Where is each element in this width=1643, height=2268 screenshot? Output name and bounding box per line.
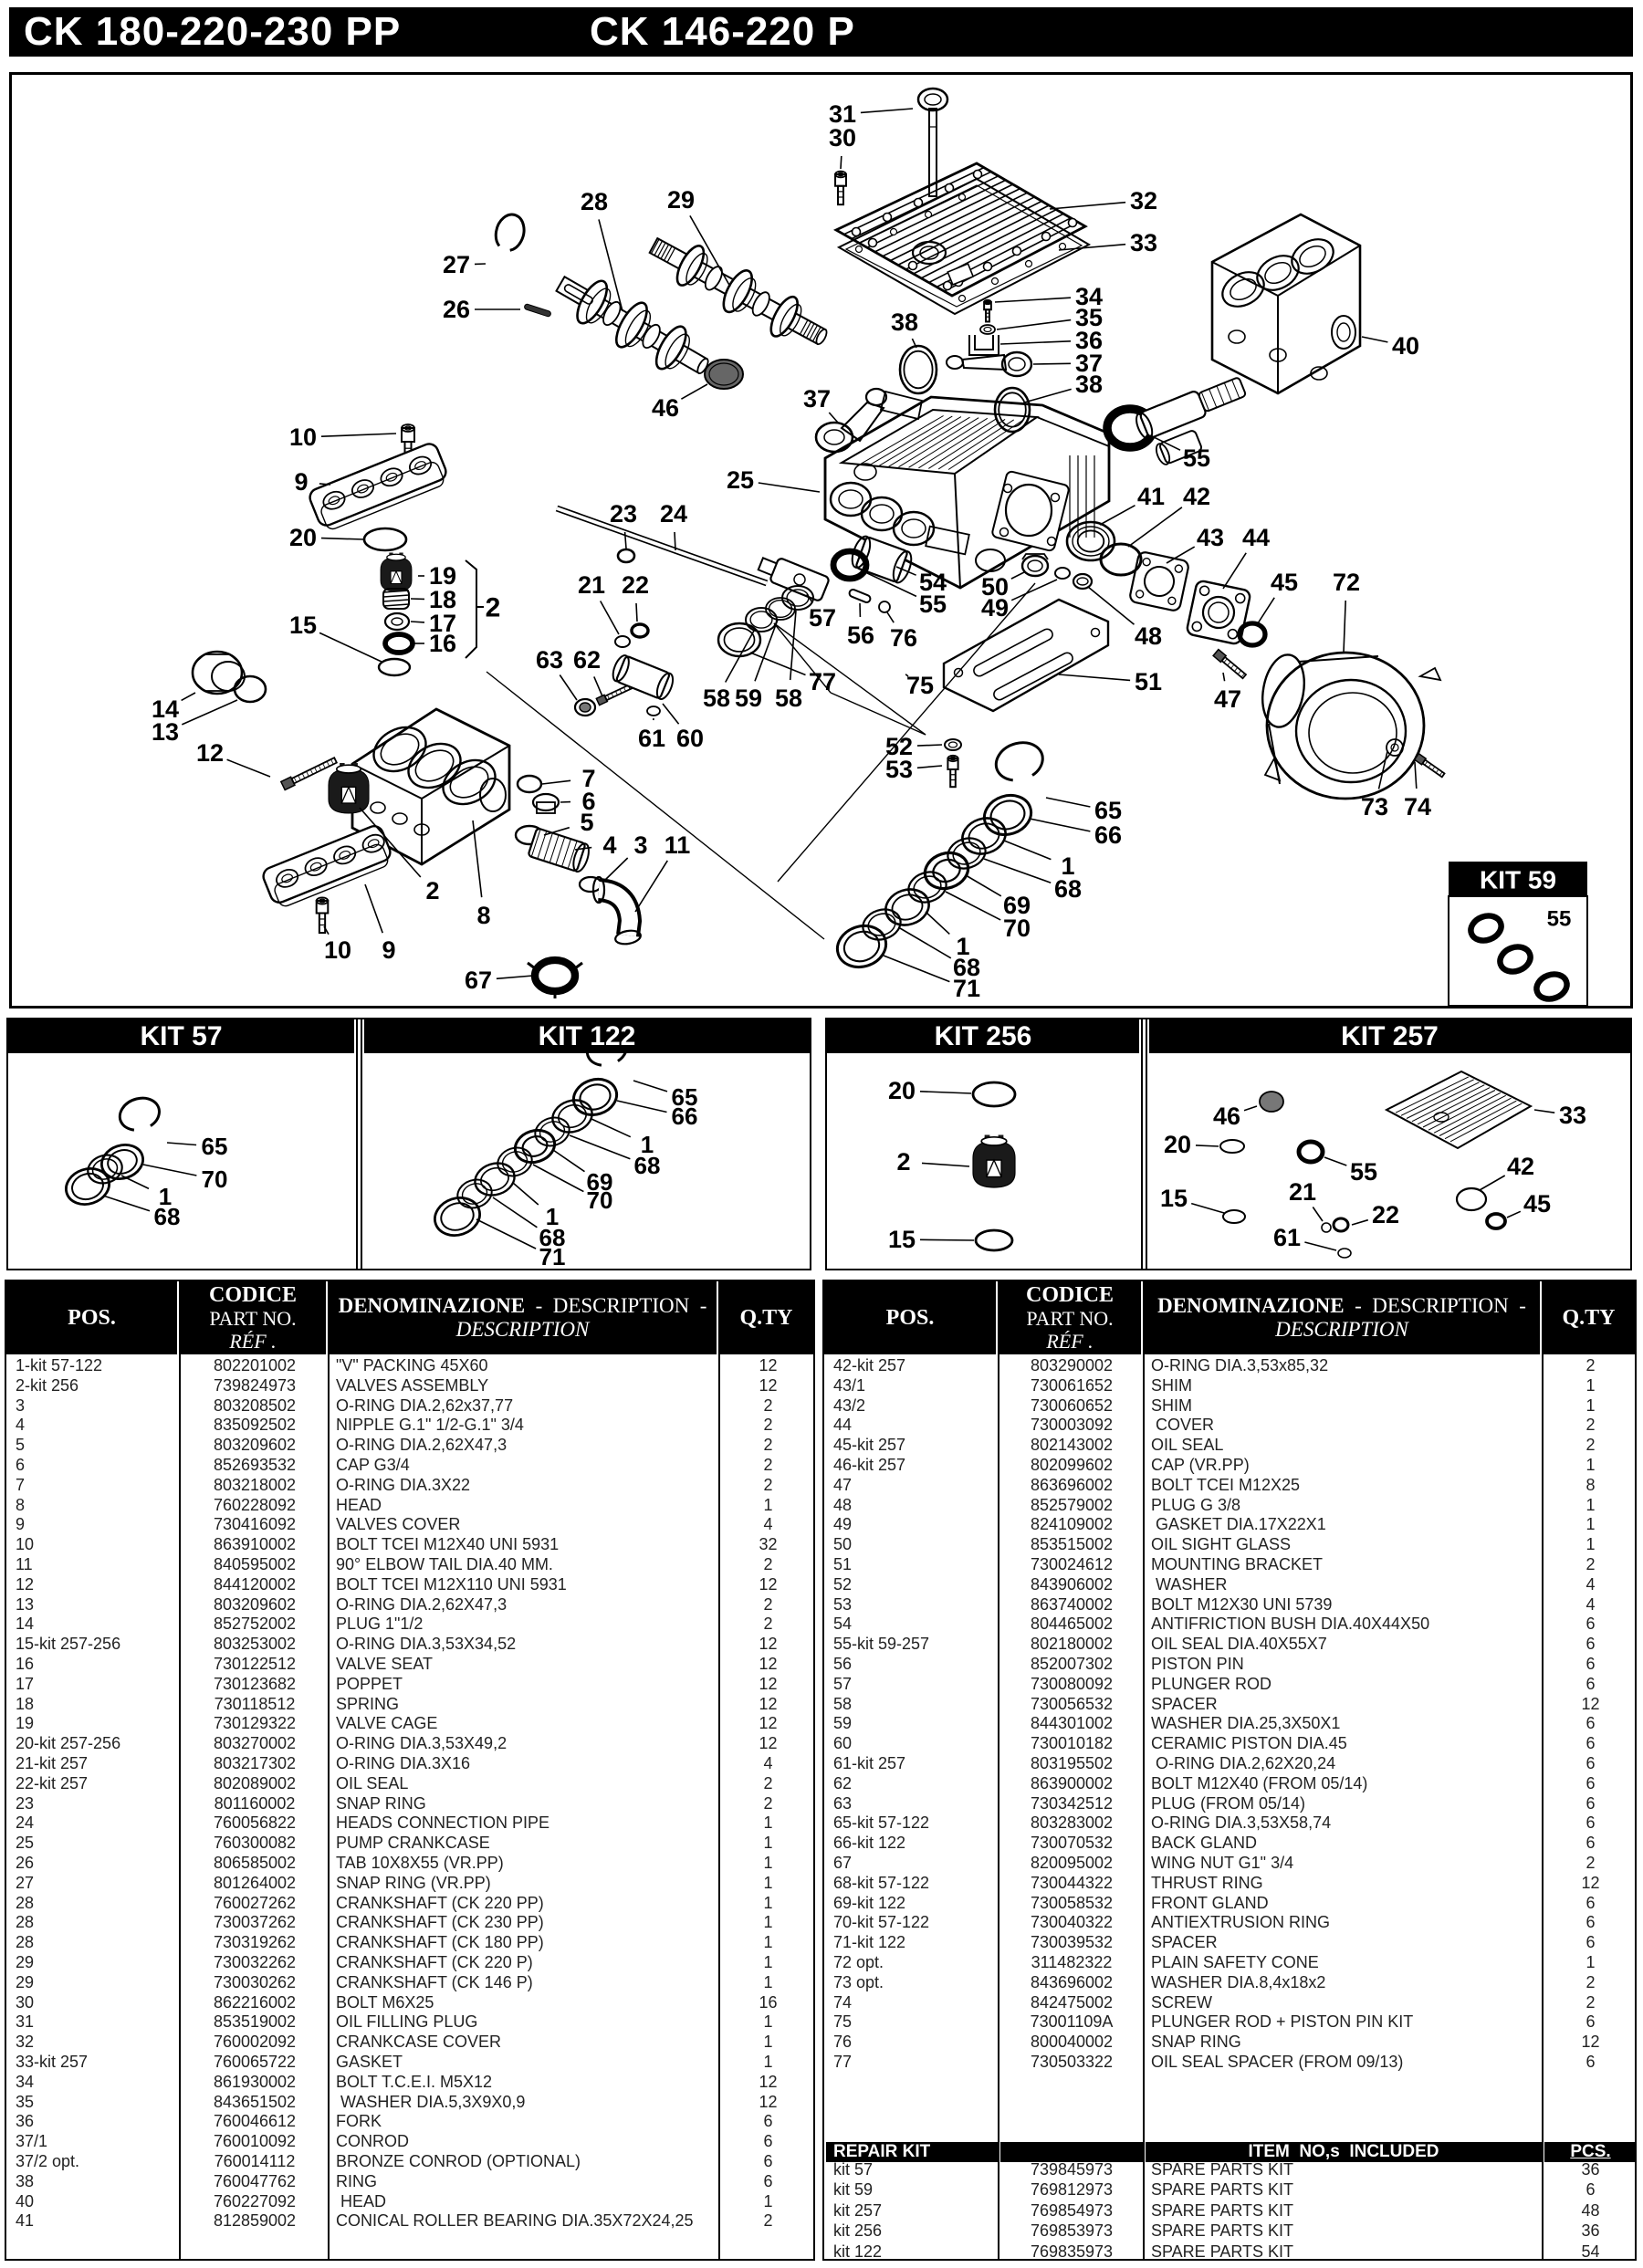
svg-text:60: 60 xyxy=(676,725,704,752)
svg-text:41: 41 xyxy=(1137,483,1165,510)
svg-text:56: 56 xyxy=(847,622,874,649)
svg-text:74: 74 xyxy=(1404,793,1431,820)
svg-text:21: 21 xyxy=(578,571,605,599)
svg-text:51: 51 xyxy=(1135,668,1162,695)
svg-text:38: 38 xyxy=(1075,371,1103,398)
svg-text:3: 3 xyxy=(633,831,647,859)
svg-text:45: 45 xyxy=(1523,1190,1551,1218)
svg-text:59: 59 xyxy=(735,685,762,712)
svg-text:55: 55 xyxy=(1547,907,1572,932)
svg-text:30: 30 xyxy=(829,124,856,152)
svg-text:68: 68 xyxy=(634,1152,661,1179)
svg-text:68: 68 xyxy=(154,1203,181,1230)
svg-text:40: 40 xyxy=(1392,332,1419,360)
svg-text:12: 12 xyxy=(196,739,224,767)
svg-text:24: 24 xyxy=(660,500,687,528)
svg-text:15: 15 xyxy=(289,611,317,639)
svg-text:42: 42 xyxy=(1507,1153,1534,1180)
svg-text:33: 33 xyxy=(1559,1102,1586,1129)
svg-text:66: 66 xyxy=(672,1103,698,1130)
svg-text:16: 16 xyxy=(429,630,456,657)
svg-text:28: 28 xyxy=(581,188,608,215)
svg-text:49: 49 xyxy=(981,594,1009,622)
svg-text:25: 25 xyxy=(727,466,754,494)
svg-text:71: 71 xyxy=(539,1243,566,1270)
svg-text:77: 77 xyxy=(809,668,836,695)
svg-text:4: 4 xyxy=(602,831,616,859)
svg-text:44: 44 xyxy=(1242,524,1270,551)
svg-text:55: 55 xyxy=(919,591,947,618)
svg-text:27: 27 xyxy=(443,251,470,278)
svg-text:8: 8 xyxy=(476,902,490,929)
svg-text:2: 2 xyxy=(896,1148,910,1176)
svg-text:61: 61 xyxy=(1273,1224,1301,1251)
svg-text:57: 57 xyxy=(809,604,836,632)
svg-text:66: 66 xyxy=(1094,821,1122,849)
svg-text:70: 70 xyxy=(587,1186,613,1214)
svg-text:55: 55 xyxy=(1183,444,1210,472)
svg-text:2: 2 xyxy=(425,877,439,904)
svg-text:68: 68 xyxy=(1054,875,1082,903)
svg-text:53: 53 xyxy=(885,756,913,783)
svg-text:76: 76 xyxy=(890,624,917,652)
svg-text:5: 5 xyxy=(580,809,593,836)
svg-text:21: 21 xyxy=(1289,1178,1316,1206)
svg-text:20: 20 xyxy=(888,1077,916,1104)
svg-text:62: 62 xyxy=(573,646,601,674)
svg-text:23: 23 xyxy=(610,500,637,528)
svg-text:43: 43 xyxy=(1197,524,1224,551)
svg-text:75: 75 xyxy=(906,672,934,699)
svg-text:45: 45 xyxy=(1271,569,1298,596)
svg-text:48: 48 xyxy=(1135,622,1162,650)
svg-text:65: 65 xyxy=(202,1133,228,1160)
svg-text:73: 73 xyxy=(1361,793,1388,820)
svg-text:2: 2 xyxy=(486,593,501,623)
svg-text:15: 15 xyxy=(1160,1185,1188,1212)
svg-text:22: 22 xyxy=(1372,1201,1399,1228)
svg-text:42: 42 xyxy=(1183,483,1210,510)
svg-text:29: 29 xyxy=(667,186,695,214)
svg-text:67: 67 xyxy=(465,967,492,994)
svg-text:70: 70 xyxy=(202,1165,228,1193)
svg-text:47: 47 xyxy=(1214,685,1241,713)
svg-text:72: 72 xyxy=(1333,569,1360,596)
svg-text:71: 71 xyxy=(953,975,980,1002)
svg-text:9: 9 xyxy=(382,936,395,964)
svg-text:22: 22 xyxy=(622,571,649,599)
svg-text:70: 70 xyxy=(1003,915,1031,942)
svg-text:26: 26 xyxy=(443,296,470,323)
svg-text:61: 61 xyxy=(638,725,665,752)
svg-text:37: 37 xyxy=(803,385,831,413)
svg-text:58: 58 xyxy=(703,685,730,712)
svg-text:15: 15 xyxy=(888,1226,916,1253)
svg-text:46: 46 xyxy=(652,394,679,422)
svg-text:13: 13 xyxy=(152,718,179,746)
svg-text:10: 10 xyxy=(289,423,317,451)
svg-text:11: 11 xyxy=(665,831,691,859)
svg-text:65: 65 xyxy=(1094,797,1122,824)
svg-text:20: 20 xyxy=(1164,1131,1191,1158)
svg-text:32: 32 xyxy=(1130,187,1157,214)
svg-text:20: 20 xyxy=(289,524,317,551)
svg-text:58: 58 xyxy=(775,685,802,712)
svg-text:9: 9 xyxy=(294,468,308,496)
svg-text:33: 33 xyxy=(1130,229,1157,256)
svg-text:38: 38 xyxy=(891,308,918,336)
svg-text:10: 10 xyxy=(324,936,351,964)
svg-text:55: 55 xyxy=(1350,1158,1377,1186)
svg-text:63: 63 xyxy=(536,646,563,674)
svg-text:46: 46 xyxy=(1213,1103,1240,1130)
svg-text:KIT 59: KIT 59 xyxy=(1480,866,1556,894)
